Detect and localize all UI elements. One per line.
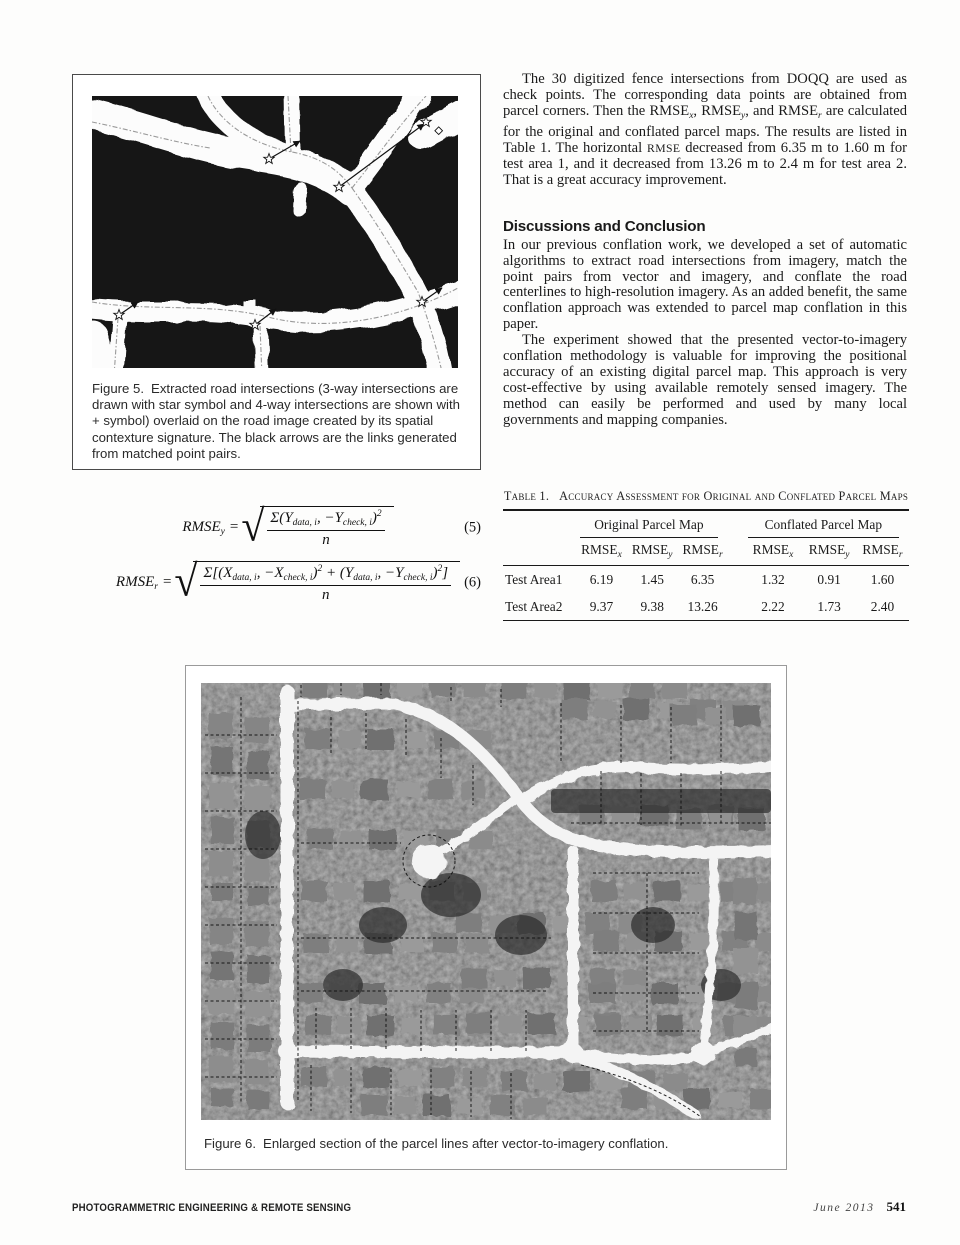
column-header-rmse-y: RMSEy <box>802 538 856 566</box>
column-header-rmse-r: RMSEr <box>856 538 909 566</box>
table-cell: 9.38 <box>627 593 678 621</box>
page-footer: PHOTOGRAMMETRIC ENGINEERING & REMOTE SEN… <box>72 1198 906 1216</box>
row-label: Test Area2 <box>503 593 576 621</box>
footer-issue-page: June 2013541 <box>813 1198 906 1216</box>
figure5-panel: Figure 5.Extracted road intersections (3… <box>72 74 481 470</box>
radical-sign: √ <box>241 507 264 548</box>
table-cell: 1.45 <box>627 566 678 594</box>
radical-sign: √ <box>174 562 197 603</box>
journal-page: Figure 5.Extracted road intersections (3… <box>0 0 960 1245</box>
table-cell: 1.73 <box>802 593 856 621</box>
table-cell: 2.40 <box>856 593 909 621</box>
table1-block: Table 1.Accuracy Assessment for Original… <box>503 489 909 621</box>
group-conflated: Conflated Parcel Map <box>748 517 899 538</box>
table1: Original Parcel Map Conflated Parcel Map… <box>503 509 909 621</box>
table-cell: 9.37 <box>576 593 627 621</box>
column-header-rmse-y: RMSEy <box>627 538 678 566</box>
table1-group-row: Original Parcel Map Conflated Parcel Map <box>503 510 909 538</box>
table-row: Test Area16.191.456.351.320.911.60 <box>503 566 909 594</box>
figure5-caption-text: Extracted road intersections (3-way inte… <box>92 381 460 461</box>
group-original: Original Parcel Map <box>580 517 718 538</box>
column-header-rmse-x: RMSEx <box>576 538 627 566</box>
figure6-aerial-image <box>201 683 771 1120</box>
table1-label: Table 1. <box>504 489 549 503</box>
table-cell: 2.22 <box>728 593 803 621</box>
table-row: Test Area29.379.3813.262.221.732.40 <box>503 593 909 621</box>
figure6-label: Figure 6. <box>204 1136 256 1151</box>
row-label: Test Area1 <box>503 566 576 594</box>
figure6-caption-text: Enlarged section of the parcel lines aft… <box>263 1136 668 1151</box>
figure5-road-image <box>92 96 458 368</box>
figure5-caption: Figure 5.Extracted road intersections (3… <box>92 381 466 462</box>
table1-column-header-row: RMSExRMSEyRMSErRMSExRMSEyRMSEr <box>503 538 909 566</box>
equation-5: RMSEy = √Σ(Ydata, i, −Ycheck, i)2n (5) <box>95 504 481 551</box>
section-heading: Discussions and Conclusion <box>503 219 907 235</box>
paragraph-conclusion-1: In our previous conflation work, we deve… <box>503 238 907 334</box>
table-cell: 6.35 <box>678 566 728 594</box>
figure5-label: Figure 5. <box>92 381 144 396</box>
issue-date: June 2013 <box>813 1202 874 1214</box>
table-cell: 1.32 <box>728 566 803 594</box>
table-cell: 13.26 <box>678 593 728 621</box>
column-header-rmse-r: RMSEr <box>678 538 728 566</box>
column-header-rmse-x: RMSEx <box>728 538 803 566</box>
table-cell: 1.60 <box>856 566 909 594</box>
right-column: The 30 digitized fence intersections fro… <box>503 72 907 429</box>
paragraph-results: The 30 digitized fence intersections fro… <box>503 72 907 189</box>
equation-6: RMSEr = √Σ[(Xdata, i, −Xcheck, i)2 + (Yd… <box>95 559 481 606</box>
paragraph-conclusion-2: The experiment showed that the presented… <box>503 333 907 429</box>
equations-block: RMSEy = √Σ(Ydata, i, −Ycheck, i)2n (5) R… <box>95 504 481 606</box>
table-cell: 0.91 <box>802 566 856 594</box>
page-number: 541 <box>887 1199 907 1214</box>
equation-number: (6) <box>464 574 481 591</box>
table1-title-text: Accuracy Assessment for Original and Con… <box>559 489 908 503</box>
figure6-panel: Figure 6.Enlarged section of the parcel … <box>185 665 787 1170</box>
equation-number: (5) <box>464 519 481 536</box>
table-cell: 6.19 <box>576 566 627 594</box>
table1-title: Table 1.Accuracy Assessment for Original… <box>503 489 909 504</box>
journal-name: PHOTOGRAMMETRIC ENGINEERING & REMOTE SEN… <box>72 1202 351 1214</box>
table1-body: Test Area16.191.456.351.320.911.60Test A… <box>503 566 909 621</box>
figure6-caption: Figure 6.Enlarged section of the parcel … <box>204 1136 769 1152</box>
